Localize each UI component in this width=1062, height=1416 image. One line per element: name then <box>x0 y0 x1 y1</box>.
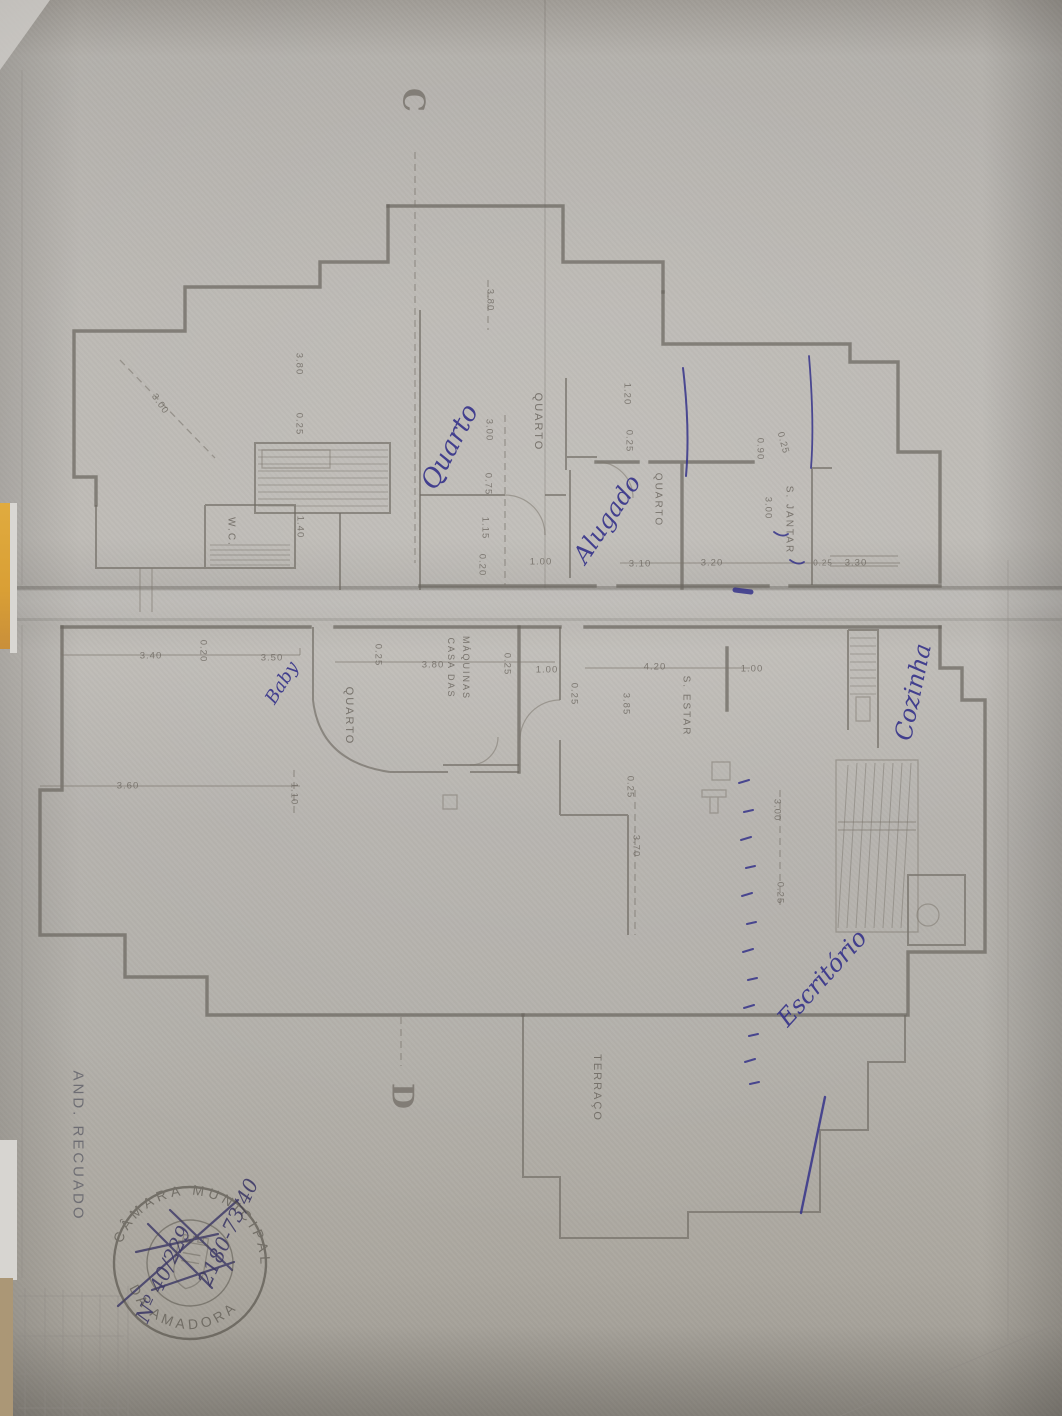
plan-drawing <box>0 0 1062 1416</box>
floor-plan-photo: QUARTOQUARTOQUARTOW.C.S. JANTARS. ESTARC… <box>0 0 1062 1416</box>
dimension-lines <box>40 152 900 1066</box>
walls-layer-upper <box>74 206 940 612</box>
signature-mark <box>118 1200 238 1306</box>
sheet-border-lines <box>22 70 1008 1340</box>
walls-layer-lower <box>40 627 985 1238</box>
title-block-table <box>18 1286 1062 1416</box>
paper-edge-left <box>0 1140 17 1280</box>
paper-corner-edge <box>0 0 50 70</box>
background-yellow-sliver <box>0 503 10 649</box>
ink-strokes <box>683 356 825 1213</box>
desk-surface-sliver <box>0 1278 13 1416</box>
paper-edge-by-sliver <box>10 503 17 653</box>
